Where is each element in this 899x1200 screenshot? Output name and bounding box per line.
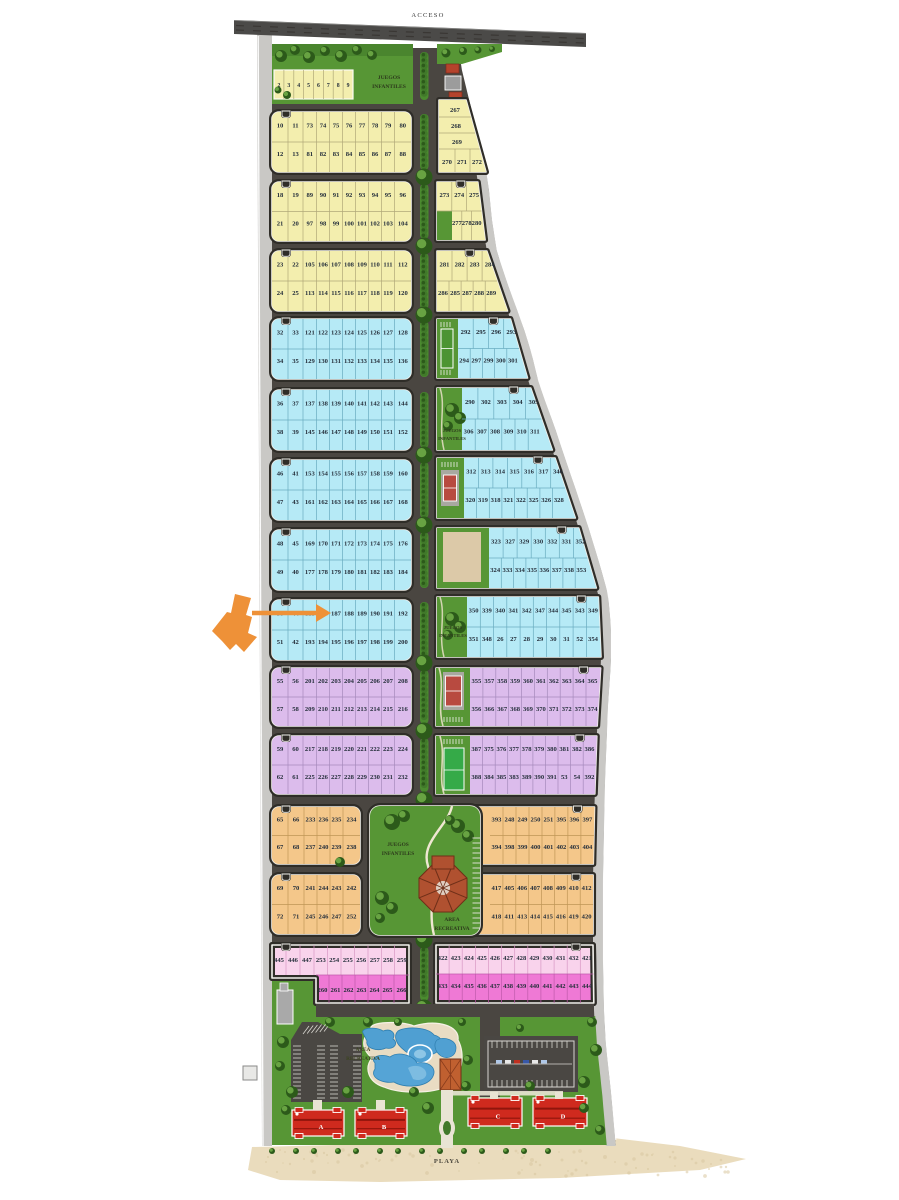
svg-text:130: 130	[318, 358, 329, 365]
svg-text:156: 156	[344, 470, 355, 477]
svg-text:56: 56	[292, 678, 299, 685]
svg-text:435: 435	[464, 983, 475, 990]
svg-text:266: 266	[397, 987, 408, 994]
svg-text:JUEGOS: JUEGOS	[378, 75, 400, 81]
svg-text:267: 267	[450, 107, 461, 114]
svg-text:323: 323	[491, 538, 502, 545]
svg-text:101: 101	[357, 221, 367, 228]
svg-text:169: 169	[305, 540, 316, 547]
svg-text:26: 26	[497, 636, 504, 643]
svg-text:284: 284	[485, 261, 496, 268]
svg-text:81: 81	[307, 151, 314, 158]
svg-text:383: 383	[509, 774, 520, 781]
svg-text:269: 269	[452, 139, 463, 146]
svg-text:134: 134	[370, 358, 381, 365]
svg-text:196: 196	[344, 639, 355, 646]
svg-text:188: 188	[344, 610, 355, 617]
svg-text:333: 333	[503, 567, 514, 574]
svg-text:312: 312	[466, 468, 477, 475]
svg-text:201: 201	[305, 678, 315, 685]
svg-text:326: 326	[541, 497, 552, 504]
svg-text:318: 318	[491, 497, 502, 504]
svg-text:381: 381	[559, 746, 569, 753]
svg-text:408: 408	[543, 885, 554, 892]
svg-text:345: 345	[562, 607, 573, 614]
svg-text:258: 258	[383, 957, 394, 964]
svg-text:290: 290	[465, 399, 476, 406]
svg-text:80: 80	[400, 122, 407, 129]
svg-text:390: 390	[534, 774, 545, 781]
svg-text:6: 6	[317, 83, 320, 89]
svg-text:99: 99	[333, 221, 340, 228]
svg-text:426: 426	[490, 955, 501, 962]
svg-text:310: 310	[517, 429, 528, 436]
svg-text:429: 429	[529, 955, 540, 962]
svg-text:252: 252	[347, 914, 358, 921]
svg-text:352: 352	[576, 538, 587, 545]
svg-text:146: 146	[318, 429, 329, 436]
svg-text:441: 441	[543, 983, 553, 990]
svg-text:12: 12	[277, 151, 284, 158]
svg-text:230: 230	[370, 774, 381, 781]
svg-text:74: 74	[320, 122, 327, 129]
svg-text:106: 106	[318, 261, 329, 268]
svg-text:288: 288	[474, 290, 485, 297]
svg-text:213: 213	[357, 706, 368, 713]
svg-text:205: 205	[357, 678, 368, 685]
svg-text:23: 23	[277, 261, 284, 268]
svg-text:376: 376	[496, 746, 507, 753]
svg-text:38: 38	[277, 429, 284, 436]
svg-text:356: 356	[471, 706, 482, 713]
svg-text:396: 396	[569, 817, 580, 824]
svg-text:229: 229	[357, 774, 368, 781]
svg-text:270: 270	[442, 159, 453, 166]
svg-text:403: 403	[569, 844, 580, 851]
svg-text:160: 160	[398, 470, 409, 477]
svg-text:41: 41	[292, 470, 299, 477]
svg-text:293: 293	[506, 329, 517, 336]
svg-text:198: 198	[370, 639, 381, 646]
svg-text:59: 59	[277, 746, 284, 753]
svg-text:260: 260	[318, 987, 329, 994]
svg-text:259: 259	[397, 957, 408, 964]
svg-text:78: 78	[372, 122, 379, 129]
svg-text:409: 409	[556, 885, 567, 892]
svg-text:22: 22	[292, 261, 299, 268]
svg-text:328: 328	[554, 497, 565, 504]
svg-text:419: 419	[569, 914, 580, 921]
svg-text:110: 110	[370, 261, 380, 268]
svg-text:42: 42	[292, 639, 299, 646]
svg-text:389: 389	[522, 774, 533, 781]
svg-text:173: 173	[357, 540, 368, 547]
svg-text:411: 411	[505, 914, 515, 921]
svg-text:438: 438	[503, 983, 514, 990]
svg-text:437: 437	[490, 983, 501, 990]
svg-text:223: 223	[383, 746, 394, 753]
svg-text:287: 287	[462, 290, 473, 297]
svg-text:8: 8	[337, 83, 340, 89]
svg-text:132: 132	[344, 358, 355, 365]
svg-text:304: 304	[513, 399, 524, 406]
svg-text:112: 112	[398, 261, 408, 268]
svg-text:166: 166	[370, 499, 381, 506]
svg-text:296: 296	[491, 329, 502, 336]
svg-text:65: 65	[277, 817, 284, 824]
svg-text:162: 162	[318, 499, 329, 506]
svg-text:375: 375	[484, 746, 495, 753]
svg-text:151: 151	[383, 429, 393, 436]
svg-text:INFANTILES: INFANTILES	[438, 436, 466, 441]
svg-text:227: 227	[331, 774, 342, 781]
svg-text:303: 303	[497, 399, 508, 406]
svg-text:320: 320	[465, 497, 476, 504]
svg-text:25: 25	[292, 290, 299, 297]
svg-text:168: 168	[398, 499, 409, 506]
svg-text:359: 359	[510, 678, 521, 685]
svg-text:353: 353	[576, 567, 587, 574]
svg-text:139: 139	[331, 400, 342, 407]
svg-text:175: 175	[383, 540, 394, 547]
svg-text:39: 39	[292, 429, 299, 436]
svg-text:148: 148	[344, 429, 355, 436]
svg-text:398: 398	[505, 844, 516, 851]
svg-text:231: 231	[383, 774, 393, 781]
svg-text:366: 366	[484, 706, 495, 713]
svg-text:192: 192	[398, 610, 409, 617]
svg-text:131: 131	[331, 358, 341, 365]
svg-text:395: 395	[556, 817, 567, 824]
svg-text:165: 165	[357, 499, 368, 506]
svg-text:443: 443	[569, 983, 580, 990]
svg-text:49: 49	[277, 569, 284, 576]
svg-text:128: 128	[398, 329, 409, 336]
svg-text:236: 236	[319, 817, 330, 824]
svg-text:424: 424	[464, 955, 475, 962]
svg-text:79: 79	[385, 122, 392, 129]
svg-text:257: 257	[370, 957, 381, 964]
svg-text:281: 281	[440, 261, 450, 268]
svg-text:330: 330	[533, 538, 544, 545]
svg-text:313: 313	[481, 468, 492, 475]
svg-text:69: 69	[277, 885, 284, 892]
svg-text:232: 232	[398, 774, 409, 781]
svg-text:190: 190	[370, 610, 381, 617]
svg-text:307: 307	[477, 429, 488, 436]
svg-text:285: 285	[450, 290, 461, 297]
svg-text:342: 342	[522, 607, 533, 614]
svg-text:147: 147	[331, 429, 342, 436]
svg-text:142: 142	[370, 400, 381, 407]
svg-text:416: 416	[556, 914, 567, 921]
svg-text:324: 324	[490, 567, 501, 574]
svg-text:149: 149	[357, 429, 368, 436]
svg-text:98: 98	[320, 221, 327, 228]
svg-text:233: 233	[306, 817, 317, 824]
svg-text:321: 321	[503, 497, 513, 504]
svg-text:405: 405	[504, 885, 515, 892]
svg-text:108: 108	[344, 261, 355, 268]
svg-text:417: 417	[491, 885, 502, 892]
svg-text:238: 238	[347, 844, 358, 851]
svg-text:240: 240	[319, 844, 330, 851]
svg-text:67: 67	[277, 844, 284, 851]
svg-text:5: 5	[307, 83, 310, 89]
svg-text:143: 143	[383, 400, 394, 407]
svg-text:444: 444	[582, 983, 593, 990]
svg-text:388: 388	[471, 774, 482, 781]
svg-text:126: 126	[370, 329, 381, 336]
svg-text:167: 167	[383, 499, 394, 506]
svg-text:76: 76	[346, 122, 353, 129]
svg-text:47: 47	[277, 499, 284, 506]
svg-text:215: 215	[383, 706, 394, 713]
svg-text:45: 45	[292, 540, 299, 547]
svg-text:C: C	[496, 1113, 501, 1120]
svg-text:187: 187	[331, 610, 342, 617]
svg-text:271: 271	[457, 159, 467, 166]
svg-text:55: 55	[277, 678, 284, 685]
svg-text:4: 4	[297, 83, 300, 89]
svg-text:386: 386	[585, 746, 596, 753]
svg-text:440: 440	[529, 983, 540, 990]
svg-text:314: 314	[495, 468, 506, 475]
svg-text:235: 235	[332, 817, 343, 824]
svg-text:374: 374	[588, 706, 599, 713]
svg-text:322: 322	[516, 497, 527, 504]
svg-text:141: 141	[357, 400, 367, 407]
svg-text:420: 420	[582, 914, 593, 921]
svg-text:371: 371	[549, 706, 559, 713]
svg-text:105: 105	[305, 261, 316, 268]
svg-text:183: 183	[383, 569, 394, 576]
svg-text:68: 68	[293, 844, 300, 851]
svg-text:92: 92	[346, 192, 353, 199]
svg-text:46: 46	[277, 470, 284, 477]
svg-text:370: 370	[536, 706, 547, 713]
svg-text:28: 28	[523, 636, 530, 643]
svg-text:194: 194	[318, 639, 329, 646]
svg-text:242: 242	[347, 885, 358, 892]
svg-text:113: 113	[305, 290, 315, 297]
svg-text:346: 346	[553, 468, 564, 475]
svg-text:20: 20	[292, 221, 299, 228]
svg-text:7: 7	[327, 83, 330, 89]
svg-text:337: 337	[552, 567, 563, 574]
svg-text:71: 71	[293, 914, 300, 921]
svg-text:365: 365	[588, 678, 599, 685]
svg-text:358: 358	[497, 678, 508, 685]
svg-text:394: 394	[492, 844, 503, 851]
svg-text:206: 206	[370, 678, 381, 685]
svg-text:319: 319	[478, 497, 489, 504]
svg-text:393: 393	[492, 817, 503, 824]
svg-text:180: 180	[344, 569, 355, 576]
svg-text:261: 261	[331, 987, 341, 994]
svg-text:31: 31	[563, 636, 570, 643]
svg-text:212: 212	[344, 706, 355, 713]
svg-text:309: 309	[503, 429, 514, 436]
svg-text:292: 292	[461, 329, 472, 336]
svg-text:344: 344	[548, 607, 559, 614]
svg-text:225: 225	[305, 774, 316, 781]
svg-text:306: 306	[464, 429, 475, 436]
svg-text:102: 102	[370, 221, 381, 228]
svg-text:343: 343	[575, 607, 586, 614]
svg-text:331: 331	[561, 538, 571, 545]
svg-text:436: 436	[477, 983, 488, 990]
svg-text:104: 104	[398, 221, 409, 228]
svg-text:197: 197	[357, 639, 368, 646]
svg-text:334: 334	[515, 567, 526, 574]
svg-text:164: 164	[344, 499, 355, 506]
svg-text:339: 339	[482, 607, 493, 614]
svg-text:338: 338	[564, 567, 575, 574]
svg-text:295: 295	[476, 329, 487, 336]
svg-text:311: 311	[530, 429, 540, 436]
svg-text:354: 354	[588, 636, 599, 643]
svg-text:305: 305	[529, 399, 540, 406]
svg-text:61: 61	[292, 774, 299, 781]
svg-text:155: 155	[331, 470, 342, 477]
svg-text:150: 150	[370, 429, 381, 436]
svg-text:351: 351	[469, 636, 479, 643]
svg-text:53: 53	[561, 774, 568, 781]
svg-text:29: 29	[537, 636, 544, 643]
svg-text:144: 144	[398, 400, 409, 407]
svg-text:384: 384	[484, 774, 495, 781]
svg-text:430: 430	[543, 955, 554, 962]
svg-text:442: 442	[556, 983, 567, 990]
svg-text:178: 178	[318, 569, 329, 576]
svg-text:JUEGOS: JUEGOS	[443, 428, 462, 433]
svg-text:120: 120	[398, 290, 409, 297]
svg-text:355: 355	[471, 678, 482, 685]
svg-text:193: 193	[305, 639, 316, 646]
svg-text:317: 317	[539, 468, 550, 475]
svg-text:58: 58	[292, 706, 299, 713]
svg-text:421: 421	[582, 955, 592, 962]
svg-text:57: 57	[277, 706, 284, 713]
svg-text:138: 138	[318, 400, 329, 407]
svg-text:422: 422	[438, 955, 449, 962]
svg-text:203: 203	[331, 678, 342, 685]
svg-text:124: 124	[344, 329, 355, 336]
svg-text:JUEGOS: JUEGOS	[387, 842, 409, 848]
svg-text:373: 373	[575, 706, 586, 713]
svg-text:209: 209	[305, 706, 316, 713]
svg-text:174: 174	[370, 540, 381, 547]
svg-text:348: 348	[482, 636, 493, 643]
svg-text:121: 121	[305, 329, 315, 336]
svg-text:36: 36	[277, 400, 284, 407]
svg-text:189: 189	[357, 610, 368, 617]
svg-text:157: 157	[357, 470, 368, 477]
svg-text:255: 255	[343, 957, 354, 964]
svg-text:200: 200	[398, 639, 409, 646]
svg-text:350: 350	[469, 607, 480, 614]
svg-text:243: 243	[332, 885, 343, 892]
svg-text:234: 234	[347, 817, 358, 824]
svg-text:66: 66	[293, 817, 300, 824]
svg-text:10: 10	[277, 122, 284, 129]
svg-text:159: 159	[383, 470, 394, 477]
svg-text:273: 273	[439, 192, 450, 199]
svg-text:410: 410	[569, 885, 580, 892]
svg-text:404: 404	[582, 844, 593, 851]
svg-text:163: 163	[331, 499, 342, 506]
svg-text:107: 107	[331, 261, 342, 268]
svg-text:176: 176	[398, 540, 409, 547]
svg-text:237: 237	[306, 844, 317, 851]
svg-text:412: 412	[582, 885, 593, 892]
svg-text:184: 184	[398, 569, 409, 576]
svg-text:349: 349	[588, 607, 599, 614]
svg-text:211: 211	[331, 706, 341, 713]
svg-text:283: 283	[470, 261, 481, 268]
svg-text:431: 431	[556, 955, 566, 962]
svg-text:300: 300	[496, 358, 507, 365]
svg-text:228: 228	[344, 774, 355, 781]
svg-text:246: 246	[319, 914, 330, 921]
svg-text:140: 140	[344, 400, 355, 407]
svg-text:286: 286	[438, 290, 449, 297]
svg-text:217: 217	[305, 746, 316, 753]
svg-text:40: 40	[292, 569, 299, 576]
svg-text:73: 73	[307, 122, 314, 129]
svg-text:RECREATIVA: RECREATIVA	[434, 926, 469, 932]
svg-text:195: 195	[331, 639, 342, 646]
svg-text:AREA: AREA	[444, 917, 459, 923]
svg-text:89: 89	[307, 192, 314, 199]
svg-text:216: 216	[398, 706, 409, 713]
svg-text:111: 111	[383, 261, 392, 268]
svg-text:27: 27	[510, 636, 517, 643]
svg-text:18: 18	[277, 192, 284, 199]
svg-text:123: 123	[331, 329, 342, 336]
svg-text:445: 445	[274, 957, 285, 964]
svg-text:AREA: AREA	[356, 1047, 371, 1053]
svg-text:248: 248	[505, 817, 516, 824]
svg-text:170: 170	[318, 540, 329, 547]
svg-text:153: 153	[305, 470, 316, 477]
svg-text:382: 382	[572, 746, 583, 753]
svg-text:202: 202	[318, 678, 329, 685]
svg-text:253: 253	[316, 957, 327, 964]
svg-text:PLAYA: PLAYA	[434, 1158, 460, 1165]
svg-text:129: 129	[305, 358, 316, 365]
svg-text:316: 316	[524, 468, 535, 475]
svg-text:294: 294	[459, 358, 470, 365]
svg-text:363: 363	[562, 678, 573, 685]
svg-text:JUEGOS: JUEGOS	[444, 625, 463, 630]
svg-text:368: 368	[510, 706, 521, 713]
svg-text:347: 347	[535, 607, 546, 614]
svg-text:145: 145	[305, 429, 316, 436]
svg-text:361: 361	[536, 678, 546, 685]
svg-text:218: 218	[318, 746, 329, 753]
svg-text:161: 161	[305, 499, 315, 506]
svg-text:208: 208	[398, 678, 409, 685]
svg-text:30: 30	[550, 636, 557, 643]
svg-text:308: 308	[490, 429, 501, 436]
svg-text:364: 364	[575, 678, 586, 685]
svg-text:275: 275	[469, 192, 480, 199]
svg-text:325: 325	[529, 497, 540, 504]
svg-text:272: 272	[472, 159, 483, 166]
svg-text:204: 204	[344, 678, 355, 685]
